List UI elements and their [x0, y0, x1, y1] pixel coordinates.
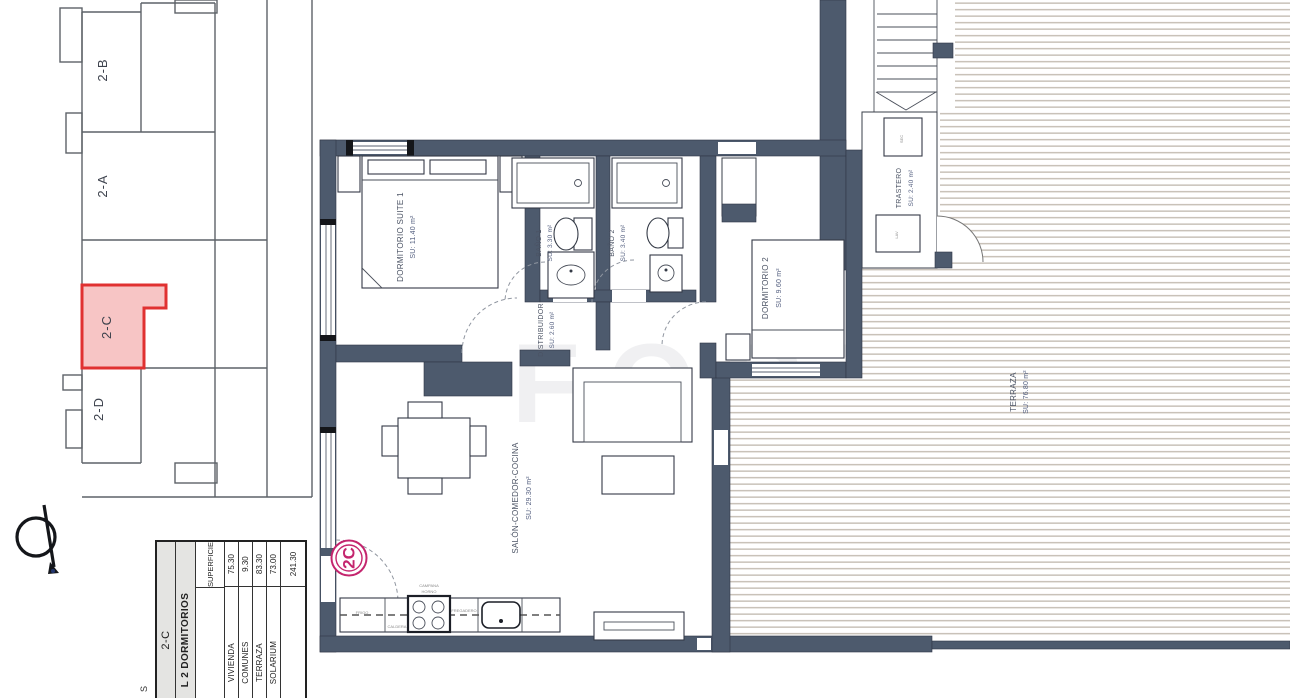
- fridge-label: FRIGO: [356, 610, 369, 615]
- bath1-name: BAÑO 1: [534, 229, 543, 256]
- hall-area: SU: 2.60 m²: [549, 311, 556, 349]
- washer-label: LAV: [894, 231, 899, 239]
- table-row: COMUNES 9.30: [238, 542, 252, 698]
- key-plan-unit-2a: 2-A: [95, 174, 110, 197]
- unit-2c-highlight: [82, 285, 166, 368]
- suite-area: SU: 11.40 m²: [410, 215, 417, 259]
- row-value: 73.00: [267, 542, 280, 586]
- hall-name: DISTRIBUIDOR: [538, 303, 545, 357]
- bedroom2-name: DORMITORIO 2: [761, 257, 770, 319]
- row-value: 83.30: [253, 542, 266, 586]
- table-side-label: S: [139, 686, 149, 692]
- sink-icon: [482, 602, 520, 628]
- basin-2-icon: [650, 255, 682, 292]
- bedroom2-area: SU: 9.60 m²: [776, 268, 783, 308]
- table-row: TERRAZA 83.30: [252, 542, 266, 698]
- key-plan: 2-B 2-A 2-C 2-D: [60, 0, 312, 497]
- table-subtitle: L 2 DORMITORIOS: [175, 542, 195, 698]
- row-label: [281, 586, 305, 698]
- oven-label: HORNO: [422, 589, 437, 594]
- row-label: COMUNES: [239, 586, 252, 698]
- living-area: SU: 29.30 m²: [526, 476, 533, 520]
- coffee-table-icon: [602, 456, 674, 494]
- entrance-badge-text: 2C: [340, 547, 359, 569]
- table-surface-header: SUPERFICIE: [196, 542, 224, 587]
- row-label: TERRAZA: [253, 586, 266, 698]
- row-label: SOLARIUM: [267, 586, 280, 698]
- suite-name: DORMITORIO SUITE 1: [396, 192, 405, 282]
- bath2-name: BAÑO 2: [607, 229, 616, 256]
- tv-unit-icon: [594, 612, 684, 640]
- key-plan-unit-2b: 2-B: [95, 58, 110, 81]
- row-value: 9.30: [239, 542, 252, 586]
- boiler-label: CALDERA: [388, 624, 407, 629]
- table-row-total: 241.30: [280, 542, 305, 698]
- row-value: 75.30: [225, 542, 238, 586]
- table-row: SOLARIUM 73.00: [266, 542, 280, 698]
- north-arrow-icon: [17, 505, 59, 574]
- floorplan-sheet: FORT SIONAL 2-B 2-A 2-C 2-D: [0, 0, 1290, 698]
- row-value: 241.30: [281, 542, 305, 586]
- key-plan-unit-2c: 2-C: [99, 315, 114, 339]
- dining-table-icon: [398, 418, 470, 478]
- table-rooms-header-cell: [196, 587, 224, 698]
- bed-suite-icon: [362, 156, 498, 288]
- dryer-label: SEC: [899, 135, 904, 143]
- terrace-area: SU: 76.80 m²: [1023, 370, 1030, 414]
- basin-1-icon: [548, 252, 594, 298]
- sink-label: FREGADERO: [451, 608, 476, 613]
- sofa-icon: [573, 368, 692, 442]
- storage-name: TRASTERO: [896, 167, 903, 208]
- entrance-badge: 2C: [332, 541, 367, 576]
- area-summary-table: 2-C L 2 DORMITORIOS SUPERFICIE VIVIENDA …: [155, 540, 307, 698]
- terrace-name: TERRAZA: [1009, 372, 1018, 412]
- bath2-area: SU: 3.40 m²: [620, 224, 627, 262]
- storage-area: SU: 2.40 m²: [908, 169, 915, 207]
- table-title: 2-C: [157, 542, 175, 698]
- row-label: VIVIENDA: [225, 586, 238, 698]
- kitchen-counter: CAMPANA HORNO FRIGO CALDERA FREGADERO: [340, 583, 560, 632]
- key-plan-unit-2d: 2-D: [91, 397, 106, 421]
- toilet-2-icon: [668, 218, 683, 248]
- shower-2-icon: [612, 158, 682, 208]
- bath1-area: SU: 3.30 m²: [547, 224, 554, 262]
- living-name: SALÓN-COMEDOR-COCINA: [511, 442, 520, 554]
- table-row: VIVIENDA 75.30: [224, 542, 238, 698]
- hood-label: CAMPANA: [419, 583, 439, 588]
